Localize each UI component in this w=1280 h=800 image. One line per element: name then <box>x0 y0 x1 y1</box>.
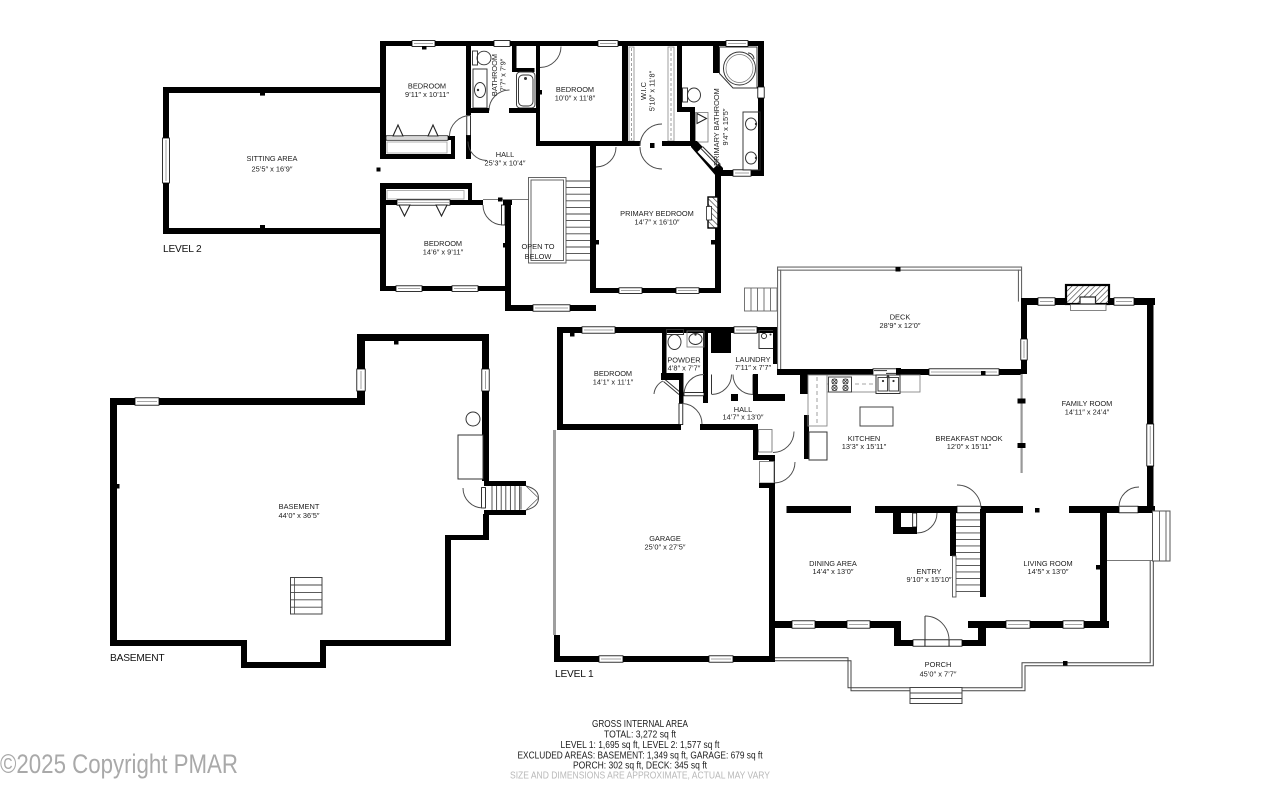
svg-text:PRIMARY BATHROOM: PRIMARY BATHROOM <box>712 88 721 166</box>
svg-text:GROSS INTERNAL AREA: GROSS INTERNAL AREA <box>592 719 688 730</box>
svg-text:9’10″ x 15’10″: 9’10″ x 15’10″ <box>906 575 951 584</box>
svg-text:LEVEL 1: LEVEL 1 <box>555 669 594 680</box>
svg-text:9’11″ x 10’11″: 9’11″ x 10’11″ <box>405 90 449 99</box>
svg-text:TOTAL: 3,272 sq ft: TOTAL: 3,272 sq ft <box>604 730 676 741</box>
svg-text:12’0″ x 15’11″: 12’0″ x 15’11″ <box>947 442 992 451</box>
svg-text:14’4″ x 13’0″: 14’4″ x 13’0″ <box>813 567 854 576</box>
svg-text:4’8″ x 7’7″: 4’8″ x 7’7″ <box>668 364 701 373</box>
svg-text:LEVEL 2: LEVEL 2 <box>163 244 202 255</box>
svg-text:44’0″ x 36’5″: 44’0″ x 36’5″ <box>279 511 320 520</box>
svg-text:14’11″ x 24’4″: 14’11″ x 24’4″ <box>1065 408 1110 417</box>
svg-text:28’9″ x 12’0″: 28’9″ x 12’0″ <box>880 321 921 330</box>
svg-text:14’7″ x 16’10″: 14’7″ x 16’10″ <box>634 218 679 227</box>
svg-text:14’1″ x 11’1″: 14’1″ x 11’1″ <box>593 378 634 387</box>
svg-text:5’10″ x 11’8″: 5’10″ x 11’8″ <box>648 70 657 111</box>
svg-text:LEVEL 1: 1,695 sq ft, LEVEL 2:: LEVEL 1: 1,695 sq ft, LEVEL 2: 1,577 sq … <box>561 740 720 751</box>
svg-text:7’7″ x 7’9″: 7’7″ x 7’9″ <box>499 58 508 91</box>
svg-text:PORCH: PORCH <box>925 660 952 669</box>
svg-text:25’3″ x 10’4″: 25’3″ x 10’4″ <box>485 159 526 168</box>
svg-text:7’11″ x 7’7″: 7’11″ x 7’7″ <box>735 363 772 372</box>
svg-text:9’4″ x 15’5″: 9’4″ x 15’5″ <box>721 108 730 145</box>
svg-text:14’5″ x 13’0″: 14’5″ x 13’0″ <box>1028 567 1069 576</box>
svg-text:SIZE AND DIMENSIONS ARE APPROX: SIZE AND DIMENSIONS ARE APPROXIMATE, ACT… <box>510 771 770 782</box>
svg-text:BASEMENT: BASEMENT <box>110 653 164 664</box>
svg-text:13’3″ x 15’11″: 13’3″ x 15’11″ <box>842 442 887 451</box>
svg-text:14’6″ x 9’11″: 14’6″ x 9’11″ <box>423 248 464 257</box>
svg-text:25’5″ x 16’9″: 25’5″ x 16’9″ <box>252 165 293 174</box>
svg-text:45’0″ x 7’7″: 45’0″ x 7’7″ <box>920 670 957 679</box>
svg-text:14’7″ x 13’0″: 14’7″ x 13’0″ <box>723 413 764 422</box>
svg-text:©2025 Copyright PMAR: ©2025 Copyright PMAR <box>0 749 238 779</box>
svg-text:SITTING AREA: SITTING AREA <box>247 154 298 163</box>
svg-text:25’0″ x 27’5″: 25’0″ x 27’5″ <box>645 543 686 552</box>
svg-text:BELOW: BELOW <box>525 252 552 261</box>
svg-text:10’0″ x 11’8″: 10’0″ x 11’8″ <box>555 94 596 103</box>
svg-text:OPEN TO: OPEN TO <box>522 242 555 251</box>
svg-text:BASEMENT: BASEMENT <box>279 502 320 511</box>
